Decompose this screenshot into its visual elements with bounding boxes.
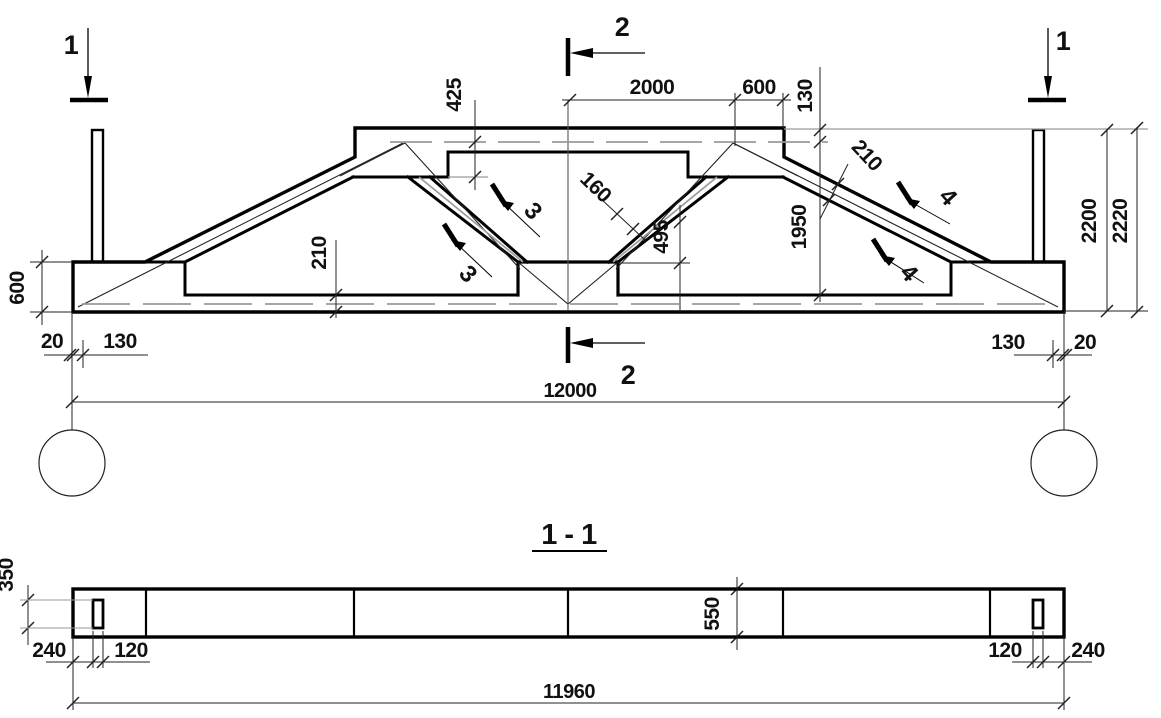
dim-node-height: 495 — [650, 219, 673, 253]
dim-plate-width-left: 120 — [114, 639, 148, 662]
dim-diagonal-thickness: 160 — [575, 167, 615, 207]
dim-line-bearing-right — [1014, 312, 1092, 430]
dim-bearing-right: 130 — [991, 331, 1025, 354]
arrow-down-icon — [84, 76, 92, 98]
dim-edge-right: 20 — [1074, 331, 1096, 354]
support-post-right — [1033, 130, 1044, 262]
dim-height-to-rebar: 2200 — [1078, 199, 1101, 244]
arrow-left-icon — [570, 338, 593, 348]
dim-plate-height: 350 — [0, 558, 18, 592]
label-section-1-right: 1 — [1056, 26, 1071, 56]
leader-160 — [600, 198, 645, 240]
label-section-3-lower: 3 — [453, 260, 482, 288]
drawing-sheet: 1 1 2 2 2000 600 130 425 160 495 1950 22… — [0, 0, 1161, 718]
dim-top-panel: 2000 — [630, 76, 675, 99]
dim-span: 12000 — [543, 380, 596, 402]
arrow-left-icon — [570, 48, 593, 58]
end-block-left — [145, 262, 185, 295]
dim-plate-width-right: 120 — [988, 639, 1022, 662]
dim-bottom-chord-thickness: 210 — [308, 236, 331, 270]
dim-length: 11960 — [543, 681, 595, 703]
dim-inner-height: 1950 — [788, 205, 811, 250]
dim-end-offset-right: 240 — [1071, 639, 1105, 662]
dim-overall-height: 2220 — [1109, 199, 1132, 244]
technical-drawing: 1 1 2 2 2000 600 130 425 160 495 1950 22… — [0, 0, 1161, 718]
dim-top-end-panel: 600 — [742, 76, 776, 99]
dim-end-offset-left: 240 — [32, 639, 66, 662]
rebar-branches — [340, 143, 798, 269]
section-bar-dividers — [146, 589, 990, 637]
dim-top-cover: 130 — [794, 79, 817, 113]
arrow-down-icon — [1044, 76, 1052, 98]
dim-end-block-height: 600 — [6, 271, 29, 305]
section-view-title: 1 - 1 — [541, 519, 597, 551]
dim-bearing-left: 130 — [103, 330, 137, 353]
embedded-plate-left — [93, 600, 103, 628]
label-section-4-lower: 4 — [894, 259, 923, 287]
dim-slope-chord-thickness: 210 — [847, 135, 887, 175]
label-section-2-bottom: 2 — [621, 360, 636, 390]
dim-depth: 550 — [701, 597, 724, 631]
dim-line-top — [562, 93, 791, 146]
section-marker-2-top — [568, 38, 645, 76]
grid-bubble-left — [39, 430, 105, 496]
dim-line-600-left — [30, 250, 72, 325]
section-marker-2-bottom — [568, 327, 645, 363]
dim-line-210-slope — [820, 164, 848, 219]
end-block-right — [951, 262, 991, 295]
ext-350 — [20, 600, 93, 628]
grid-bubble-right — [1031, 430, 1097, 496]
section-flags — [444, 182, 950, 283]
label-section-4-upper: 4 — [933, 183, 962, 211]
embedded-plate-right — [1033, 600, 1043, 628]
label-section-1-left: 1 — [64, 30, 79, 60]
rebar-bend-left — [78, 143, 403, 307]
dim-edge-left: 20 — [41, 330, 63, 353]
dim-top-chord-depth: 425 — [443, 77, 466, 111]
support-post-left — [92, 130, 103, 262]
label-section-2-top: 2 — [615, 12, 630, 42]
